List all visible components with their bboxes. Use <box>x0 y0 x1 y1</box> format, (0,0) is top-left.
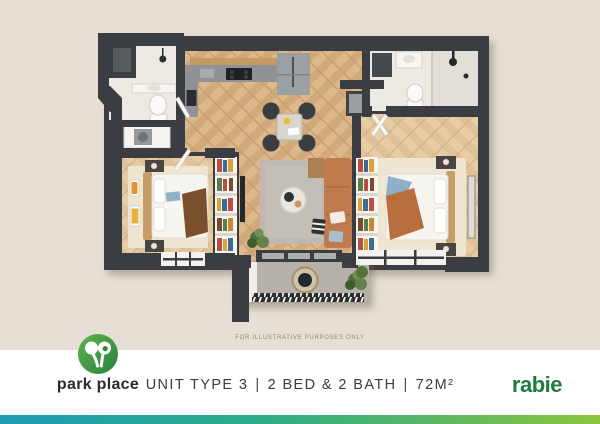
rabie-logo: rabie <box>512 372 562 398</box>
toilet <box>150 95 168 121</box>
footer-bar: park place UNIT TYPE 3|2 BED & 2 BATH|72… <box>0 350 600 415</box>
unit-area: 72M² <box>416 377 455 393</box>
dining-table <box>277 114 302 140</box>
sliding-door-balcony <box>256 250 342 262</box>
tv <box>240 176 245 222</box>
bathroom-cabinet <box>372 53 392 77</box>
caption-separator: | <box>255 377 260 393</box>
top-wall <box>176 40 487 51</box>
shaft-inner <box>113 48 131 72</box>
brand-gradient-bar <box>0 415 600 424</box>
entry-wall-vertical <box>232 266 249 322</box>
oven <box>187 90 197 106</box>
beds-baths: 2 BED & 2 BATH <box>268 377 397 393</box>
fire-pit <box>293 268 318 293</box>
wardrobe-shelf <box>356 157 378 257</box>
window-main-bedroom <box>356 250 446 265</box>
shower-glass <box>431 51 433 111</box>
laundry-closet <box>124 126 170 148</box>
bottom-wall <box>111 253 163 268</box>
floorplan-flyer: FOR ILLUSTRATIVE PURPOSES ONLY park plac… <box>0 0 600 424</box>
caption-separator: | <box>404 377 409 393</box>
patterned-cushion <box>311 218 325 234</box>
mirror <box>468 176 475 238</box>
window-bedroom <box>161 252 205 266</box>
park-place-wordmark: park place <box>52 376 144 394</box>
blue-throw <box>166 191 181 201</box>
sink <box>200 69 214 78</box>
toilet <box>407 84 423 107</box>
cooktop <box>226 68 252 80</box>
ensuite-divider <box>362 40 370 114</box>
park-place-logo: park place <box>52 333 144 394</box>
pillow <box>154 207 165 231</box>
unit-caption: UNIT TYPE 3|2 BED & 2 BATH|72M² <box>146 377 455 393</box>
right-wall <box>478 40 489 272</box>
unit-type: UNIT TYPE 3 <box>146 377 249 393</box>
floor-plan-drawing <box>0 0 600 350</box>
headboard <box>143 172 152 240</box>
bedroom-top-wall <box>111 148 187 158</box>
pillow <box>434 179 446 204</box>
coffee-table <box>280 187 306 213</box>
park-place-logo-icon <box>77 333 119 375</box>
fridge-tall-units <box>277 53 310 95</box>
bathroom-divider <box>176 40 185 98</box>
wardrobe-shelf <box>215 157 237 257</box>
flowers <box>284 118 291 125</box>
cushion <box>329 211 345 224</box>
cushion <box>329 230 344 242</box>
pillow <box>434 208 446 233</box>
ensuite-bottom-wall <box>386 106 487 117</box>
side-table <box>308 158 324 178</box>
pillow <box>154 179 165 203</box>
balcony-railing <box>252 293 364 302</box>
blanket <box>182 188 208 238</box>
